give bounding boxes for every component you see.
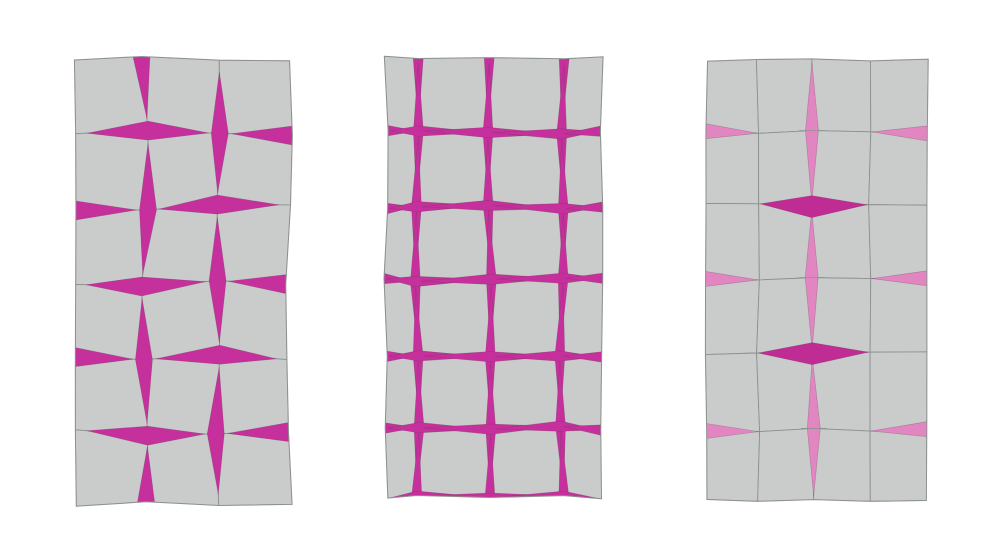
tile-1-3 bbox=[757, 278, 813, 354]
tile-1-4 bbox=[418, 356, 491, 429]
tile-3-1 bbox=[869, 132, 928, 205]
tile-0-0 bbox=[706, 59, 759, 133]
tile-0-1 bbox=[76, 131, 148, 211]
tile-2-0 bbox=[812, 59, 871, 132]
tile-0-5 bbox=[707, 431, 760, 501]
tile-3-1 bbox=[562, 131, 603, 208]
tile-1-5 bbox=[146, 434, 219, 506]
panel-right-localized-openings bbox=[653, 59, 983, 501]
tile-1-5 bbox=[417, 428, 491, 498]
tile-2-3 bbox=[490, 278, 563, 357]
tile-3-2 bbox=[869, 205, 927, 279]
tile-0-3 bbox=[705, 279, 759, 355]
tile-2-4 bbox=[812, 352, 870, 431]
tile-0-2 bbox=[76, 210, 148, 287]
tile-2-5 bbox=[216, 432, 292, 506]
tile-2-5 bbox=[814, 428, 871, 501]
tile-1-4 bbox=[144, 355, 220, 436]
tile-1-2 bbox=[415, 205, 491, 281]
tile-3-2 bbox=[563, 207, 603, 278]
tile-2-5 bbox=[490, 426, 564, 497]
tile-1-1 bbox=[416, 131, 488, 207]
tile-1-0 bbox=[418, 58, 489, 133]
auxetic-panels-svg bbox=[0, 0, 1000, 557]
tile-2-1 bbox=[488, 133, 563, 209]
tile-2-4 bbox=[490, 356, 560, 429]
tile-0-2 bbox=[706, 203, 760, 280]
tile-2-1 bbox=[812, 131, 871, 207]
tile-1-5 bbox=[758, 428, 814, 501]
tile-1-3 bbox=[415, 279, 491, 356]
tile-3-5 bbox=[870, 429, 927, 501]
tile-2-4 bbox=[216, 355, 289, 434]
tile-0-4 bbox=[705, 353, 759, 432]
auxetic-tiling-figure bbox=[0, 0, 1000, 557]
tile-3-3 bbox=[870, 278, 927, 352]
tile-1-0 bbox=[756, 59, 812, 133]
tile-2-2 bbox=[488, 205, 563, 279]
tile-0-1 bbox=[706, 131, 759, 204]
panel-left-alternating-diamonds bbox=[15, 0, 353, 557]
tile-2-0 bbox=[219, 60, 292, 135]
tile-2-1 bbox=[217, 133, 292, 205]
tile-1-4 bbox=[757, 353, 814, 432]
tile-3-4 bbox=[560, 356, 602, 430]
tile-0-0 bbox=[384, 56, 418, 131]
tile-2-3 bbox=[812, 278, 871, 354]
tile-0-3 bbox=[75, 284, 144, 359]
tile-1-1 bbox=[759, 131, 812, 207]
tile-3-0 bbox=[870, 59, 928, 133]
panel-middle-fully-open-grid bbox=[354, 0, 641, 557]
tile-2-0 bbox=[488, 58, 564, 134]
tile-2-2 bbox=[217, 205, 290, 285]
tile-3-4 bbox=[870, 352, 927, 431]
